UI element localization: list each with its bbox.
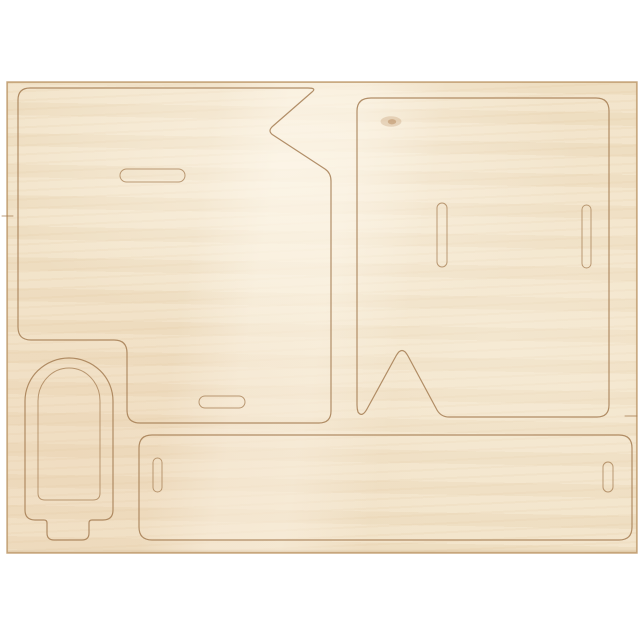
popsicle-inner-cutline [38, 368, 100, 500]
bottom-bar-cutline [139, 435, 632, 540]
sheet-outline [7, 82, 637, 553]
slot-bottom-bar-right [603, 462, 613, 492]
left-panel-cutline [18, 88, 331, 423]
slot-right-panel-right [582, 205, 591, 268]
slot-bottom-bar-left [153, 458, 162, 492]
cut-lines-overlay [0, 0, 640, 640]
wood-knot-core [388, 119, 396, 124]
right-panel-cutline [357, 98, 609, 417]
product-photo-plywood-kit [0, 0, 640, 640]
slot-left-panel-bottom [199, 396, 245, 408]
slot-left-panel-top [120, 169, 185, 182]
slot-right-panel-left [437, 203, 447, 267]
